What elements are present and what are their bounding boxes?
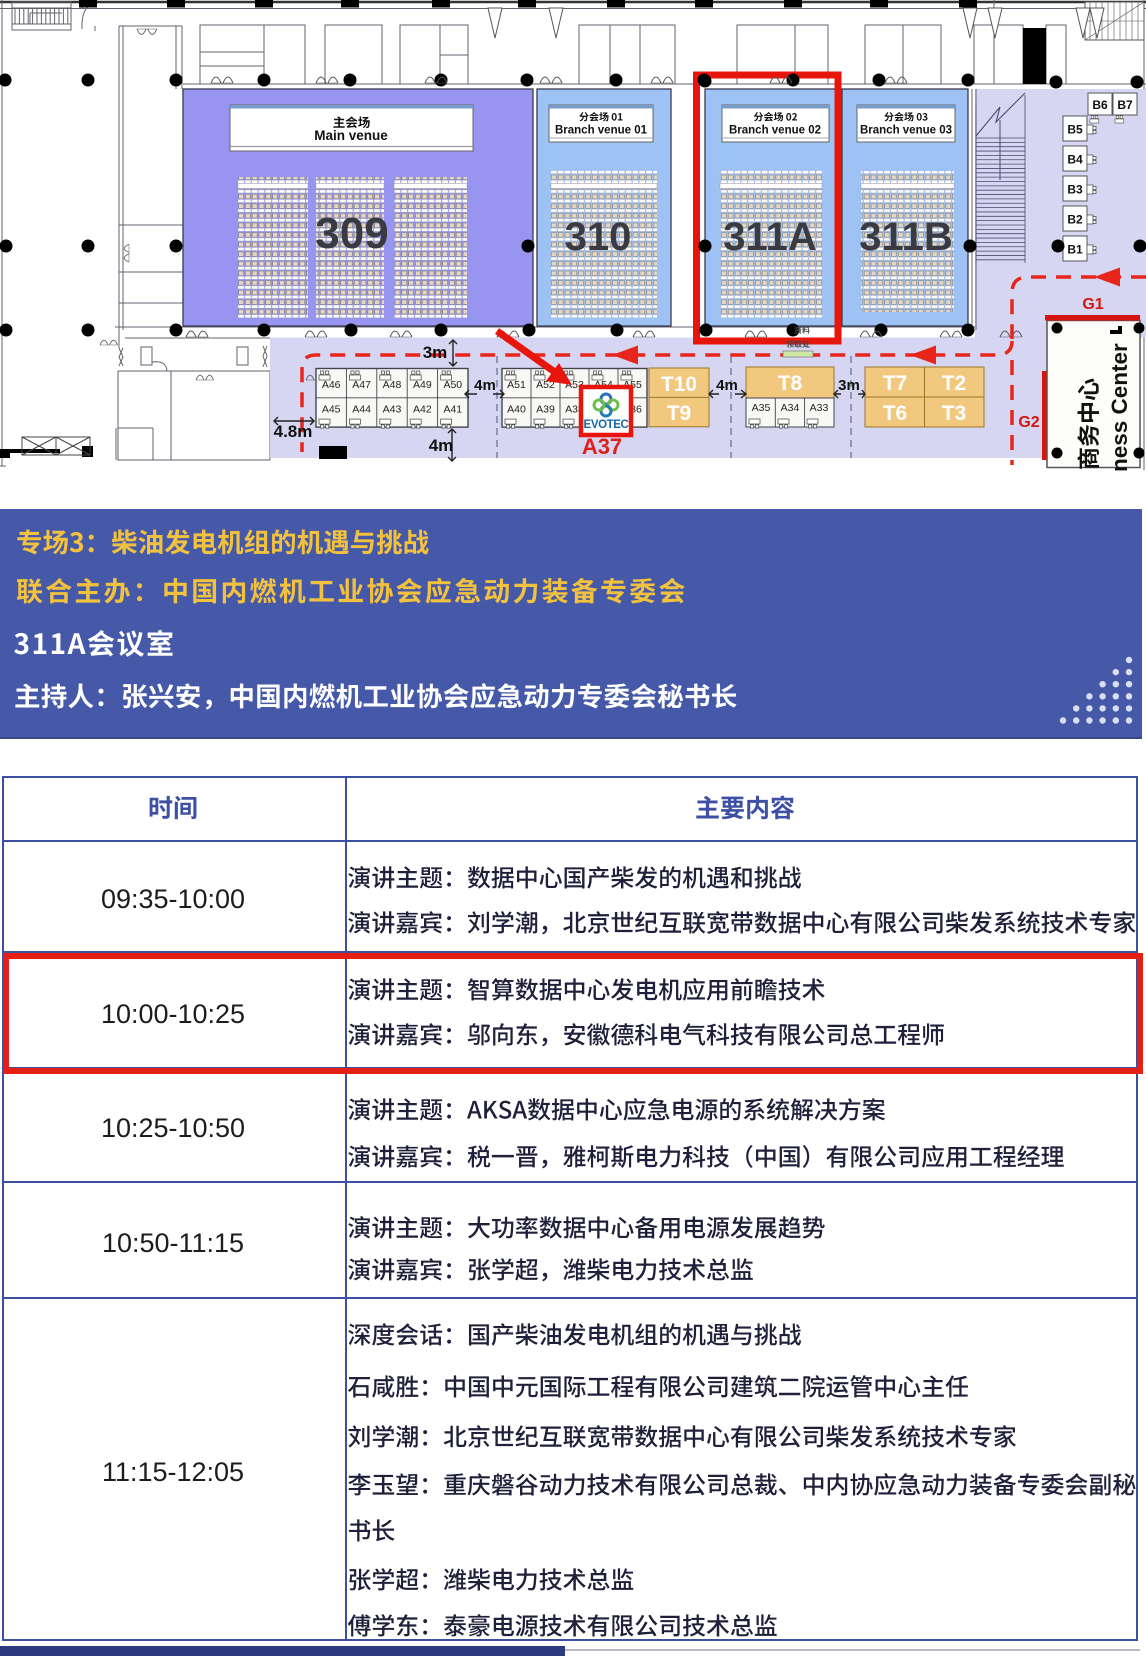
svg-text:A35: A35 [752,402,771,414]
svg-text:ness Center: ness Center [1107,343,1132,471]
svg-text:Main venue: Main venue [314,128,388,143]
svg-text:A41: A41 [443,403,462,415]
svg-text:A45: A45 [322,403,341,415]
svg-text:A34: A34 [781,402,800,414]
svg-text:B6: B6 [1092,98,1108,112]
svg-text:A47: A47 [352,379,371,391]
svg-text:311B: 311B [859,215,952,259]
svg-text:B4: B4 [1067,153,1083,167]
svg-text:B7: B7 [1117,98,1133,112]
svg-text:3m: 3m [838,377,860,394]
svg-text:T2: T2 [942,372,967,395]
svg-text:4m: 4m [429,436,454,455]
svg-text:4m: 4m [716,377,738,394]
svg-text:G1: G1 [1082,296,1103,313]
svg-text:A51: A51 [507,379,526,391]
svg-text:A46: A46 [322,379,341,391]
svg-text:Branch venue 02: Branch venue 02 [729,125,821,137]
svg-text:3m: 3m [423,343,448,362]
svg-text:A48: A48 [383,379,402,391]
svg-text:A44: A44 [352,403,371,415]
svg-text:EVOTEC: EVOTEC [584,419,629,431]
svg-text:4m: 4m [474,377,496,394]
svg-text:A42: A42 [413,403,432,415]
svg-text:T9: T9 [667,402,692,425]
svg-text:310: 310 [565,215,632,259]
svg-text:A40: A40 [507,403,526,415]
svg-text:B2: B2 [1067,213,1083,227]
svg-text:T6: T6 [883,402,908,425]
svg-text:A43: A43 [383,403,402,415]
svg-text:A33: A33 [810,402,829,414]
svg-text:B1: B1 [1067,243,1083,257]
svg-text:G2: G2 [1018,414,1039,431]
svg-text:Branch venue 01: Branch venue 01 [555,125,648,137]
svg-text:A50: A50 [443,379,462,391]
svg-text:311A: 311A [723,215,816,259]
svg-text:T7: T7 [883,372,908,395]
svg-text:T3: T3 [942,402,967,425]
svg-text:4.8m: 4.8m [274,422,313,441]
svg-text:T10: T10 [661,373,697,396]
svg-text:A37: A37 [582,434,622,459]
svg-text:A49: A49 [413,379,432,391]
svg-text:T8: T8 [778,372,803,395]
svg-text:B5: B5 [1067,123,1083,137]
svg-text:Branch venue 03: Branch venue 03 [860,125,952,137]
svg-text:B3: B3 [1067,183,1083,197]
svg-text:A39: A39 [536,403,555,415]
svg-text:309: 309 [315,209,388,258]
